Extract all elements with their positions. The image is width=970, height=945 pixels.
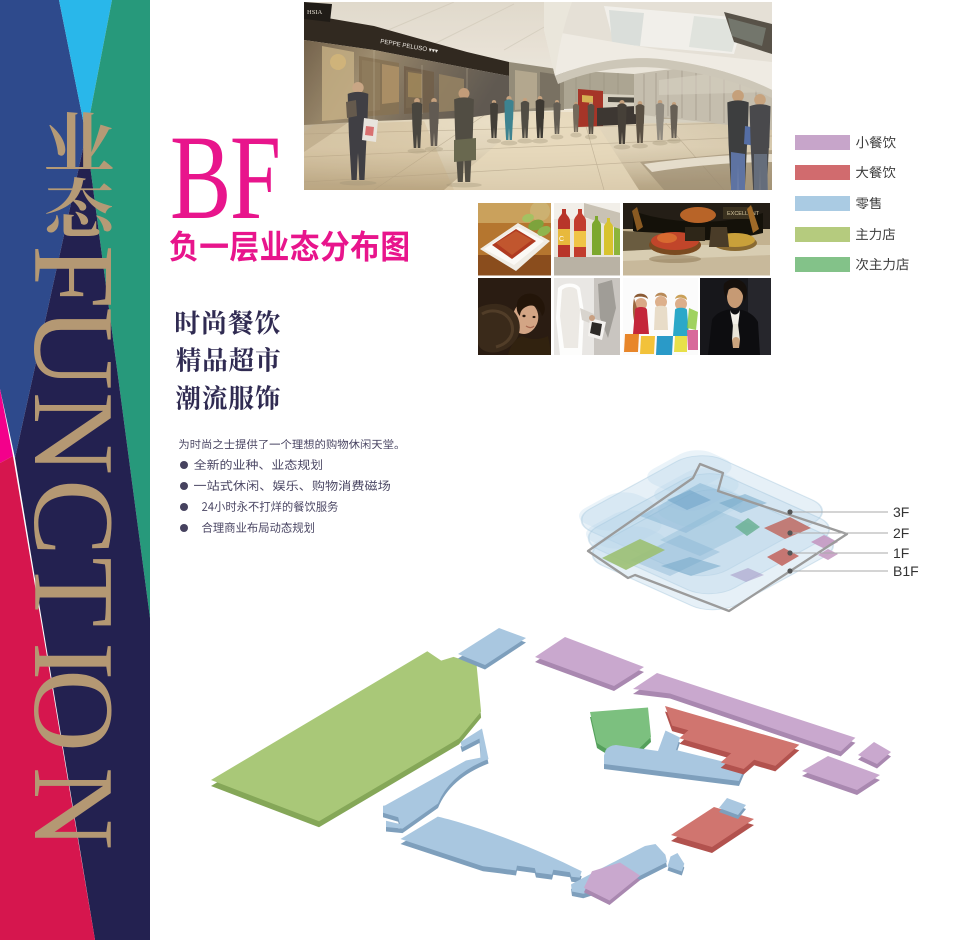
svg-text:C: C bbox=[559, 236, 564, 243]
svg-text:3F: 3F bbox=[893, 504, 909, 520]
svg-text:EXCELLENT: EXCELLENT bbox=[727, 211, 760, 217]
svg-text:U: U bbox=[10, 307, 137, 390]
svg-text:B1F: B1F bbox=[893, 563, 919, 579]
svg-text:2F: 2F bbox=[893, 525, 909, 541]
svg-text:C: C bbox=[10, 479, 137, 556]
svg-text:T: T bbox=[10, 557, 137, 627]
svg-text:N: N bbox=[10, 392, 137, 475]
svg-text:1F: 1F bbox=[893, 545, 909, 561]
svg-text:N: N bbox=[10, 767, 137, 850]
svg-text:O: O bbox=[10, 669, 137, 752]
svg-text:F: F bbox=[10, 245, 137, 309]
